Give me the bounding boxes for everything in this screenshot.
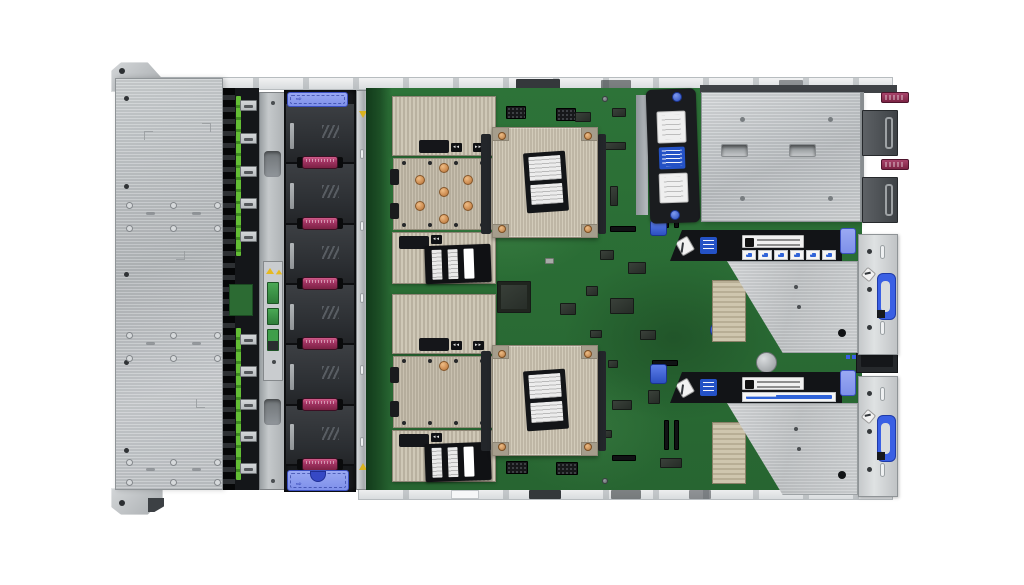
fan-label	[290, 123, 294, 149]
rail-slot	[360, 365, 364, 375]
warning-triangle-icon	[276, 270, 282, 275]
board-screw	[602, 478, 608, 484]
bracket-screw	[271, 101, 275, 105]
handling-icon-row	[742, 250, 836, 260]
cover-screw	[797, 305, 801, 309]
fan-label	[290, 424, 294, 450]
vent-hole	[126, 479, 133, 486]
pcie-riser-cages	[668, 228, 900, 497]
handling-icon-row	[742, 392, 836, 402]
vent-hole	[214, 202, 221, 209]
rail-screw	[867, 467, 872, 472]
stamp-mark	[192, 342, 201, 345]
green-sticker	[267, 308, 279, 325]
socket-tag-left: ◂◂	[431, 433, 442, 442]
blue-service-sticker	[700, 379, 717, 396]
vent-hole	[170, 459, 177, 466]
vent-hole	[214, 332, 221, 339]
handling-icon	[758, 250, 772, 260]
psu-handle	[885, 184, 893, 216]
plate-screw	[124, 184, 129, 189]
handling-icon	[806, 250, 820, 260]
drive-connector-group	[240, 334, 257, 474]
label-text-line	[757, 386, 800, 388]
stamp-mark	[146, 342, 155, 345]
label-strip	[431, 448, 442, 478]
panel-mark	[202, 123, 211, 132]
dimm-guide-block	[712, 280, 746, 342]
fan-label	[290, 183, 294, 209]
fan-module	[286, 285, 354, 345]
fan-vent-lines	[322, 366, 339, 379]
heatsink-screw	[584, 225, 592, 233]
fan-module	[286, 406, 354, 466]
drive-connector	[240, 198, 257, 209]
label-strip	[447, 447, 458, 477]
heatsink-warning-label	[523, 369, 569, 432]
plate-screw	[124, 272, 129, 277]
rail-screw	[867, 429, 872, 434]
socket-hole-row	[402, 421, 484, 425]
rail-slot	[360, 149, 364, 159]
label-card	[530, 183, 563, 205]
fan-release-handle	[302, 398, 338, 411]
handling-icon	[774, 250, 788, 260]
riser-blue-latch	[840, 228, 856, 254]
pin-header	[506, 106, 526, 119]
processor-blank-fins: ◂◂	[392, 232, 496, 284]
fan-label	[290, 364, 294, 390]
drive-connector	[240, 231, 257, 242]
socket-notch	[390, 169, 399, 185]
green-sticker	[267, 282, 279, 304]
bracket-cutout	[264, 399, 281, 425]
cpu-socket	[393, 356, 495, 428]
heatsink-screw	[584, 350, 592, 358]
lid-handle-cutout	[721, 144, 748, 157]
server-top-view-photo: ⇨ ⇨	[0, 0, 1024, 585]
cpu-socket	[393, 158, 495, 230]
warning-triangle-icon	[266, 268, 274, 274]
board-connector	[612, 455, 636, 461]
psu-pull-tab	[881, 159, 909, 170]
media-bay-bracket	[259, 92, 285, 490]
drive-connector	[240, 100, 257, 111]
socket-hole-row	[402, 161, 484, 165]
vent-hole-row	[126, 355, 221, 362]
strip-screw	[272, 360, 276, 364]
cpu-heatsinks	[492, 127, 598, 456]
ear-screw	[119, 500, 125, 506]
motherboard-edge-shadow	[366, 88, 392, 490]
cover-screw	[838, 329, 846, 337]
cover-screw	[797, 447, 801, 451]
board-connector	[610, 226, 636, 232]
fan-release-handle	[302, 337, 338, 350]
heatsink-mount-rail	[481, 134, 491, 234]
heatsink-screw	[498, 132, 506, 140]
heatsink-screw	[498, 225, 506, 233]
vent-hole	[170, 202, 177, 209]
rail-oval-slot	[880, 463, 885, 477]
bracket-cutout	[264, 151, 281, 177]
pencil-tag-icon	[675, 236, 695, 257]
fan-release-handle	[302, 217, 338, 230]
contact-pad	[463, 175, 473, 185]
vent-hole-row	[126, 202, 221, 209]
vent-hole	[170, 355, 177, 362]
chassis-foot	[148, 498, 164, 512]
riser-pull-handle	[877, 273, 896, 320]
stamp-mark	[146, 468, 155, 471]
fan-vent-lines	[322, 125, 339, 138]
plate-screw	[124, 448, 129, 453]
drive-connector	[240, 463, 257, 474]
riser-rear-rail	[858, 234, 898, 355]
label-strip	[447, 249, 458, 279]
socket-tag-left: ◂◂	[451, 143, 462, 152]
rail-screw	[867, 249, 872, 254]
drive-connector	[240, 366, 257, 377]
rail-screw	[867, 325, 872, 330]
socket-notch	[390, 401, 399, 417]
smd-component	[575, 112, 591, 122]
heatsink-screw	[498, 443, 506, 451]
latch-arrow-icon: ⇨	[296, 94, 302, 105]
green-sticker	[267, 329, 279, 351]
lid-screw	[740, 117, 745, 122]
cover-screw	[794, 285, 798, 289]
heatsink-screw	[498, 350, 506, 358]
board-screw	[602, 96, 608, 102]
drive-connector	[240, 334, 257, 345]
socket-notch	[390, 367, 399, 383]
fan-vent-lines	[322, 306, 339, 319]
label-card	[528, 155, 562, 181]
fan-vent-lines	[322, 185, 339, 198]
label-strip	[431, 250, 442, 280]
label-strip	[463, 248, 474, 278]
fan-module	[286, 225, 354, 285]
blue-service-sticker	[700, 237, 717, 254]
fan-vent-lines	[322, 246, 339, 259]
power-supply-handle-block	[862, 177, 898, 223]
ear-screw	[119, 68, 125, 74]
label-strip	[463, 446, 474, 476]
vent-hole	[126, 332, 133, 339]
handle-slot	[881, 281, 890, 312]
smd-component	[628, 262, 646, 274]
heatsink-mount-rail	[598, 134, 606, 234]
contact-pad	[439, 187, 449, 197]
vent-hole	[214, 479, 221, 486]
vent-hole	[126, 355, 133, 362]
rail-screw	[867, 391, 872, 396]
drive-backplane	[223, 88, 259, 490]
handling-icon	[790, 250, 804, 260]
latch-arrow-icon: ⇨	[296, 479, 302, 490]
blue-retention-clip	[650, 364, 667, 384]
vent-hole	[170, 225, 177, 232]
air-baffle-bracket	[646, 88, 701, 224]
fan-release-handle	[302, 156, 338, 169]
handle-slot	[881, 423, 890, 454]
handling-icon	[822, 250, 836, 260]
fan-cage-latch-bottom: ⇨	[287, 470, 349, 491]
cpu-heatsink	[492, 127, 598, 238]
fan-bank	[286, 104, 354, 466]
contact-pad	[415, 175, 425, 185]
stamp-mark	[192, 468, 201, 471]
instruction-label	[659, 173, 689, 204]
fan-module	[286, 164, 354, 224]
vent-hole	[126, 225, 133, 232]
socket-hole-row	[402, 223, 484, 227]
pencil-tag-icon	[675, 378, 695, 399]
drive-connector	[240, 431, 257, 442]
pin-header	[556, 108, 576, 121]
riser-warning-label	[742, 377, 804, 390]
blank-recess	[419, 338, 449, 351]
riser-label-bar	[670, 230, 842, 261]
pencil-tag-icon	[861, 409, 876, 424]
rail-oval-slot	[880, 387, 885, 401]
rail-slot	[360, 221, 364, 231]
heatsink-screw	[584, 132, 592, 140]
cpu-heatsink	[492, 345, 598, 456]
lid-handle-cutout	[789, 144, 816, 157]
pcie-riser-cage	[668, 228, 900, 355]
bracket-label-strip	[263, 261, 283, 381]
contact-pad	[463, 201, 473, 211]
vent-hole-row	[126, 459, 221, 466]
power-supply-bay-lid	[701, 92, 861, 222]
rail-oval-slot	[880, 321, 885, 335]
smd-component	[612, 108, 626, 117]
rail-oval-slot	[880, 245, 885, 259]
vent-hole-row	[126, 225, 221, 232]
vent-hole	[214, 459, 221, 466]
heatsink-screw	[584, 443, 592, 451]
socket-tag-right: ▸▸	[473, 341, 484, 350]
fan-vent-lines	[322, 427, 339, 440]
riser-blue-latch	[840, 370, 856, 396]
label-text-line	[757, 244, 800, 246]
backplane-mid-pcb	[229, 284, 253, 316]
drive-bay-cover-plate	[115, 78, 223, 490]
plate-screw	[124, 96, 129, 101]
heatsink-warning-label	[523, 151, 569, 214]
vent-hole-row	[126, 479, 221, 486]
dimm-guide-block	[712, 422, 746, 484]
blue-service-sticker	[659, 147, 686, 170]
heatsink-mount-rail	[481, 351, 491, 451]
rail-slot	[360, 437, 364, 447]
instruction-label	[656, 111, 686, 144]
cover-screw	[794, 427, 798, 431]
contact-pad	[415, 201, 425, 211]
smd-component	[604, 142, 626, 150]
panel-mark	[144, 131, 153, 140]
handling-icon	[742, 250, 756, 260]
fan-module	[286, 345, 354, 405]
socket-tag-left: ◂◂	[451, 341, 462, 350]
fan-label	[290, 243, 294, 269]
cover-screw	[838, 471, 846, 479]
smd-component	[640, 330, 656, 340]
lid-screw	[828, 196, 833, 201]
panel-mark	[196, 399, 205, 408]
socket-hole-row	[402, 359, 484, 363]
pcie-riser-cage	[668, 370, 900, 497]
smd-component	[648, 390, 660, 404]
rail-notch	[611, 490, 641, 499]
fan-cage-latch-top: ⇨	[287, 92, 348, 107]
latch-grip	[310, 471, 326, 482]
drive-connector-group	[240, 100, 257, 242]
riser-warning-label	[742, 235, 804, 248]
vent-hole	[214, 355, 221, 362]
socket-tag-left: ◂◂	[431, 235, 442, 244]
vent-hole	[126, 202, 133, 209]
vent-hole	[214, 225, 221, 232]
blue-captive-screw	[672, 92, 682, 102]
smd-component	[600, 250, 614, 260]
vent-hole	[126, 459, 133, 466]
blank-recess	[419, 140, 449, 153]
rail-screw	[867, 287, 872, 292]
fan-release-handle	[302, 277, 338, 290]
pin-header	[506, 461, 528, 474]
warning-glyph-icon	[745, 380, 754, 389]
smd-component	[610, 298, 634, 314]
blue-captive-screw	[670, 210, 680, 220]
pin-header	[556, 462, 578, 475]
drive-connector	[240, 133, 257, 144]
riser-pull-handle	[877, 415, 896, 462]
fan-module	[286, 104, 354, 164]
stamp-mark	[146, 212, 155, 215]
label-card	[528, 373, 562, 399]
riser-label-bar	[670, 372, 842, 403]
smd-component	[612, 400, 632, 410]
rail-tab	[451, 490, 479, 499]
socket-notch	[390, 203, 399, 219]
riser-rear-rail	[858, 376, 898, 497]
bracket-screw	[271, 479, 275, 483]
drive-connector	[240, 166, 257, 177]
fan-label	[290, 304, 294, 330]
panel-mark	[176, 251, 185, 260]
cpu-info-label	[424, 244, 491, 284]
label-text-line	[757, 239, 800, 241]
handling-icon	[742, 392, 836, 402]
rail-slot	[360, 293, 364, 303]
psu-pull-tab	[881, 92, 909, 103]
warning-glyph-icon	[745, 238, 754, 247]
vent-hole-row	[126, 332, 221, 339]
psu-pull-tabs	[881, 92, 909, 170]
vent-hole	[170, 332, 177, 339]
drive-connector	[240, 399, 257, 410]
heatsink-mount-rail	[598, 351, 606, 451]
lid-screw	[740, 196, 745, 201]
pencil-tag-icon	[861, 267, 876, 282]
label-text-line	[757, 381, 800, 383]
rail-notch	[529, 490, 561, 499]
processor-blank-fins: ◂◂ ▸▸	[392, 294, 496, 354]
label-card	[530, 401, 563, 423]
stamp-mark	[192, 212, 201, 215]
smd-component	[610, 186, 618, 206]
lid-screw	[828, 117, 833, 122]
smd-component	[608, 360, 618, 368]
vent-hole	[170, 479, 177, 486]
